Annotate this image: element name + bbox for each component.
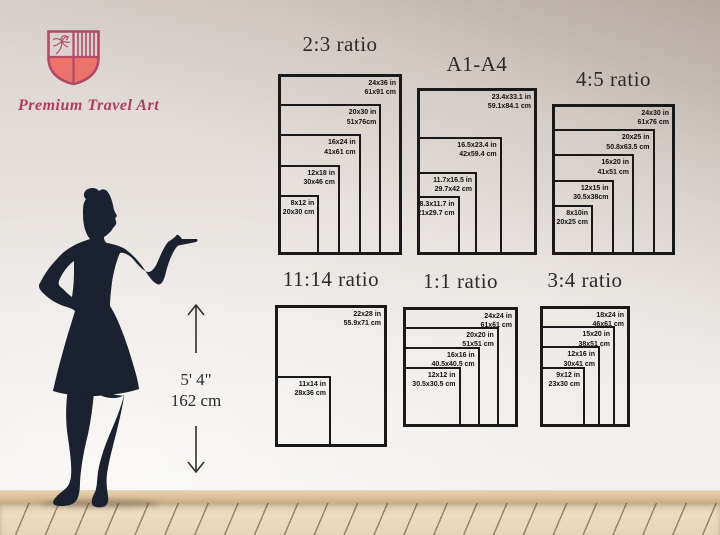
size-label-in: 23.4x33.1 in: [488, 93, 531, 102]
size-label-in: 20x25 in: [606, 133, 649, 142]
size-chart-panel: 11:14 ratio22x28 in55.9x71 cm11x14 in28x…: [275, 305, 387, 447]
size-label-in: 24x30 in: [637, 109, 669, 118]
chart-title: 4:5 ratio: [576, 67, 651, 92]
size-label-cm: 30.5x30.5 cm: [412, 380, 455, 389]
size-chart-panel: A1-A423.4x33.1 in59.1x84.1 cm16.5x23.4 i…: [417, 88, 537, 255]
size-label: 22x28 in55.9x71 cm: [344, 310, 381, 329]
size-label: 20x30 in51x76cm: [347, 108, 377, 127]
size-rectangle: 12x12 in30.5x30.5 cm: [403, 367, 461, 427]
size-label: 12x15 in30.5x38cm: [573, 184, 608, 203]
size-label-in: 18x24 in: [592, 311, 624, 320]
size-label-cm: 20x30 cm: [283, 208, 315, 217]
size-chart-panel: 1:1 ratio24x24 in61x61 cm20x20 in51x51 c…: [403, 307, 518, 427]
size-label-cm: 41x51 cm: [597, 168, 629, 177]
size-label-cm: 61x91 cm: [364, 88, 396, 97]
size-label: 16x24 in41x61 cm: [324, 138, 356, 157]
size-label-cm: 51x76cm: [347, 118, 377, 127]
size-label-in: 11x14 in: [294, 380, 326, 389]
size-label: 12x12 in30.5x30.5 cm: [412, 371, 455, 390]
size-label: 9x12 in23x30 cm: [548, 371, 580, 390]
size-label: 8.3x11.7 in21x29.7 cm: [417, 200, 454, 219]
size-rectangle: 8.3x11.7 in21x29.7 cm: [417, 196, 460, 255]
down-arrow-icon: [184, 426, 208, 474]
size-label-cm: 30x46 cm: [303, 178, 335, 187]
size-label-in: 8x12 in: [283, 199, 315, 208]
size-label-in: 16.5x23.4 in: [457, 141, 496, 150]
size-label-in: 12x15 in: [573, 184, 608, 193]
chart-title: 3:4 ratio: [547, 268, 622, 293]
size-label-in: 11.7x16.5 in: [433, 176, 472, 185]
size-label: 8x10in20x25 cm: [556, 209, 588, 228]
size-label: 24x36 in61x91 cm: [364, 79, 396, 98]
size-label-cm: 55.9x71 cm: [344, 319, 381, 328]
size-label: 11x14 in28x36 cm: [294, 380, 326, 399]
height-marker: 5' 4" 162 cm: [160, 303, 232, 474]
size-label: 24x30 in61x76 cm: [637, 109, 669, 128]
chart-title: 11:14 ratio: [283, 267, 379, 292]
size-label-cm: 61x76 cm: [637, 118, 669, 127]
size-label-in: 12x18 in: [303, 169, 335, 178]
size-label-cm: 28x36 cm: [294, 389, 326, 398]
size-label-in: 8x10in: [556, 209, 588, 218]
size-label: 20x25 in50.8x63.5 cm: [606, 133, 649, 152]
chart-title: 2:3 ratio: [302, 32, 377, 57]
chart-title: A1-A4: [447, 52, 508, 77]
size-label-cm: 23x30 cm: [548, 380, 580, 389]
size-label-cm: 41x61 cm: [324, 148, 356, 157]
size-label-in: 12x16 in: [563, 350, 595, 359]
up-arrow-icon: [184, 303, 208, 355]
size-chart-panel: 2:3 ratio24x36 in61x91 cm20x30 in51x76cm…: [278, 74, 402, 255]
size-label: 8x12 in20x30 cm: [283, 199, 315, 218]
size-label-in: 22x28 in: [344, 310, 381, 319]
size-label-in: 24x36 in: [364, 79, 396, 88]
size-rectangle: 9x12 in23x30 cm: [540, 367, 585, 428]
size-label-in: 24x24 in: [480, 312, 512, 321]
size-label-in: 9x12 in: [548, 371, 580, 380]
size-label-in: 8.3x11.7 in: [417, 200, 454, 209]
size-label: 12x18 in30x46 cm: [303, 169, 335, 188]
size-label-cm: 20x25 cm: [556, 218, 588, 227]
size-label: 16.5x23.4 in42x59.4 cm: [457, 141, 496, 160]
size-label-in: 16x24 in: [324, 138, 356, 147]
size-chart-panel: 3:4 ratio18x24 in46x61 cm15x20 in38x51 c…: [540, 306, 630, 427]
size-label-in: 16x20 in: [597, 158, 629, 167]
size-label-cm: 21x29.7 cm: [417, 209, 454, 218]
size-label-in: 12x12 in: [412, 371, 455, 380]
size-label: 11.7x16.5 in29.7x42 cm: [433, 176, 472, 195]
size-rectangle: 11x14 in28x36 cm: [275, 376, 331, 447]
size-rectangle: 8x10in20x25 cm: [552, 205, 593, 255]
size-label-cm: 59.1x84.1 cm: [488, 102, 531, 111]
size-rectangle: 8x12 in20x30 cm: [278, 195, 319, 255]
size-label: 23.4x33.1 in59.1x84.1 cm: [488, 93, 531, 112]
size-label-cm: 50.8x63.5 cm: [606, 143, 649, 152]
size-label-in: 20x30 in: [347, 108, 377, 117]
size-label-cm: 29.7x42 cm: [433, 185, 472, 194]
size-label-in: 16x16 in: [431, 351, 474, 360]
chart-title: 1:1 ratio: [423, 269, 498, 294]
size-label-cm: 30.5x38cm: [573, 193, 608, 202]
size-label-in: 20x20 in: [462, 331, 494, 340]
size-label-in: 15x20 in: [578, 330, 610, 339]
size-label-cm: 42x59.4 cm: [457, 150, 496, 159]
height-cm: 162 cm: [171, 390, 222, 411]
size-label: 16x20 in41x51 cm: [597, 158, 629, 177]
height-feet: 5' 4": [180, 369, 211, 390]
size-chart-panel: 4:5 ratio24x30 in61x76 cm20x25 in50.8x63…: [552, 104, 675, 255]
